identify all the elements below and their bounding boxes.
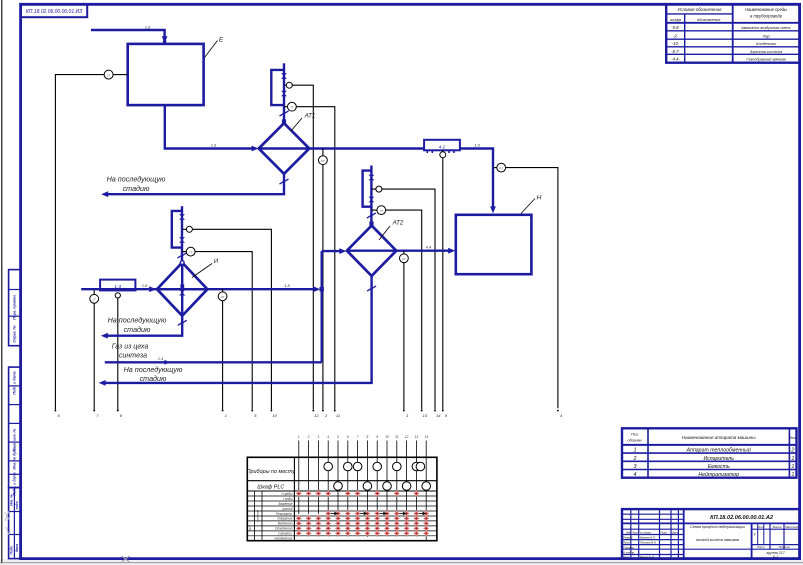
svg-text:КП.18.02.06.00.00.01.А2: КП.18.02.06.00.00.01.А2: [710, 515, 774, 521]
svg-text:Кол: Кол: [790, 436, 796, 440]
svg-text:2: 2: [633, 456, 637, 462]
svg-text:На последующую: На последующую: [107, 175, 166, 184]
svg-text:Приборы по месту: Приборы по месту: [247, 469, 296, 475]
svg-text:-8.7-: -8.7-: [671, 49, 680, 54]
svg-text:Масса: Масса: [773, 525, 782, 529]
svg-text:1-3: 1-3: [114, 284, 121, 289]
svg-text:Лит.: Лит.: [756, 525, 764, 529]
svg-text:Поз.: Поз.: [631, 433, 639, 437]
svg-text:Шкаф PLC: Шкаф PLC: [257, 485, 284, 491]
svg-text:сигналы: сигналы: [255, 509, 259, 522]
svg-text:дата: дата: [15, 544, 19, 553]
svg-text:12: 12: [405, 435, 409, 439]
svg-text:обозначение: обозначение: [697, 17, 721, 22]
svg-text:1: 1: [791, 464, 794, 470]
svg-text:Н: Н: [537, 195, 542, 202]
svg-text:4: 4: [634, 472, 637, 478]
svg-text:14: 14: [424, 435, 428, 439]
svg-text:10: 10: [272, 413, 277, 418]
svg-text:8: 8: [367, 435, 369, 439]
svg-text:Е: Е: [219, 37, 224, 44]
svg-text:азотной кислоты аммиаком: азотной кислоты аммиаком: [696, 538, 740, 542]
svg-text:2: 2: [307, 435, 310, 439]
svg-text:1: 1: [298, 435, 300, 439]
svg-text:Аммиачно-воздушная смесь: Аммиачно-воздушная смесь: [740, 26, 791, 30]
svg-text:t среды: t среды: [282, 492, 294, 496]
svg-text:1.4: 1.4: [158, 356, 164, 361]
svg-text:1: 1: [225, 413, 227, 418]
svg-text:2: 2: [790, 448, 794, 454]
svg-text:Схема процесса нейтрализации: Схема процесса нейтрализации: [690, 525, 745, 529]
svg-text:1: 1: [791, 456, 794, 462]
svg-text:3: 3: [634, 464, 637, 470]
svg-text:Б-2: Б-2: [773, 555, 778, 559]
svg-text:в трубопроводе: в трубопроводе: [750, 13, 783, 18]
svg-text:Лист: Лист: [631, 531, 640, 535]
svg-text:11: 11: [336, 413, 340, 418]
svg-text:-2-: -2-: [673, 33, 679, 38]
svg-text:И: И: [214, 258, 219, 265]
svg-text:сигнализ.: сигнализ.: [278, 532, 292, 536]
svg-text:Дата: Дата: [671, 531, 679, 535]
svg-text:1: 1: [634, 448, 637, 454]
svg-text:Подп.: Подп.: [661, 531, 668, 535]
svg-text:11: 11: [395, 435, 399, 439]
svg-text:На последующую: На последующую: [124, 365, 183, 374]
svg-text:показание: показание: [277, 517, 292, 521]
svg-text:Т.контр.: Т.контр.: [623, 545, 635, 549]
svg-text:Испаритель: Испаритель: [703, 456, 734, 462]
svg-text:Конденсат: Конденсат: [756, 42, 776, 46]
svg-text:Изм: Изм: [626, 531, 631, 535]
svg-text:Нейтрализатор: Нейтрализатор: [698, 471, 739, 478]
svg-text:синтеза: синтеза: [119, 352, 147, 359]
svg-text:АТ2: АТ2: [392, 220, 404, 227]
svg-text:1: 1: [791, 472, 794, 478]
svg-text:7: 7: [357, 435, 359, 439]
svg-text:стадию: стадию: [124, 325, 151, 334]
svg-text:Инв. №: Инв. №: [9, 494, 13, 506]
svg-text:-4.4-: -4.4-: [671, 57, 680, 62]
svg-text:12: 12: [314, 413, 319, 418]
svg-text:4-2: 4-2: [439, 144, 446, 149]
svg-text:АСУ: АСУ: [248, 524, 252, 532]
svg-text:3: 3: [318, 435, 320, 439]
svg-text:4.4: 4.4: [426, 244, 432, 249]
svg-text:Лист: Лист: [756, 545, 765, 549]
svg-text:обознач.: обознач.: [627, 438, 642, 442]
svg-text:Масштаб: Масштаб: [785, 525, 798, 529]
svg-text:13: 13: [415, 435, 419, 439]
svg-text:13: 13: [423, 413, 428, 418]
svg-text:АТ1: АТ1: [304, 113, 316, 120]
svg-text:расход: расход: [281, 507, 292, 511]
svg-text:Петров В.Н.: Петров В.Н.: [640, 541, 657, 545]
svg-text:-10-: -10-: [672, 41, 680, 46]
svg-text:стадию: стадию: [123, 184, 150, 193]
svg-text:Азотная кислота: Азотная кислота: [749, 50, 782, 54]
svg-text:1.8: 1.8: [142, 283, 148, 288]
svg-text:1.9: 1.9: [145, 24, 151, 29]
svg-text:КП.18.02.06.00.00.01.ИЗ: КП.18.02.06.00.00.01.ИЗ: [26, 9, 82, 15]
svg-text:1.8: 1.8: [284, 283, 290, 288]
svg-text:Подп.: Подп.: [9, 545, 13, 554]
svg-text:Утв.: Утв.: [623, 555, 630, 559]
svg-text:подл.: подл.: [15, 501, 19, 510]
svg-text:-5.8-: -5.8-: [671, 25, 680, 30]
svg-text:Наименование аппарата машины: Наименование аппарата машины: [682, 435, 756, 440]
svg-text:10: 10: [385, 435, 389, 439]
svg-text:Перв. примен.: Перв. примен.: [13, 294, 17, 319]
svg-text:шифр: шифр: [670, 17, 682, 22]
svg-text:у: у: [753, 532, 756, 536]
svg-text:Аппарат теплообменный: Аппарат теплообменный: [686, 447, 751, 454]
svg-text:напряжение: напряжение: [275, 536, 293, 540]
svg-text:Инв. № дубл.: Инв. № дубл.: [13, 446, 17, 469]
svg-text:5: 5: [337, 435, 339, 439]
svg-text:t воды: t воды: [283, 497, 293, 501]
svg-text:Пров.: Пров.: [623, 541, 631, 545]
svg-text:Условия обозначения: Условия обозначения: [678, 7, 723, 12]
svg-text:1.9: 1.9: [211, 142, 217, 147]
svg-text:давление: давление: [279, 502, 293, 506]
svg-text:Наименование среды: Наименование среды: [745, 7, 787, 12]
svg-text:Пар: Пар: [763, 34, 770, 38]
svg-text:9: 9: [376, 435, 378, 439]
svg-text:Листов: Листов: [778, 545, 790, 549]
svg-text:Белов О.Д.: Белов О.Д.: [640, 555, 655, 559]
svg-text:Регулиров.: Регулиров.: [276, 512, 293, 516]
svg-text:Емкость: Емкость: [708, 464, 730, 470]
svg-text:1.9: 1.9: [474, 142, 480, 147]
svg-text:Разраб.: Разраб.: [623, 536, 633, 540]
svg-text:Иванов И.П.: Иванов И.П.: [640, 536, 656, 540]
svg-text:На последующую: На последующую: [108, 316, 167, 325]
svg-text:14: 14: [436, 413, 441, 418]
svg-text:Подп. и дата: Подп. и дата: [13, 371, 17, 394]
svg-text:№ докум.: № докум.: [640, 531, 652, 535]
svg-text:Газообразный аммиак: Газообразный аммиак: [746, 58, 786, 62]
svg-text:6: 6: [347, 435, 349, 439]
svg-text:Включено: Включено: [278, 522, 293, 526]
svg-text:4: 4: [327, 435, 329, 439]
svg-text:Газ из цеха: Газ из цеха: [112, 344, 149, 351]
svg-text:Отключено: Отключено: [275, 527, 293, 531]
svg-text:Справ. №: Справ. №: [13, 325, 17, 342]
